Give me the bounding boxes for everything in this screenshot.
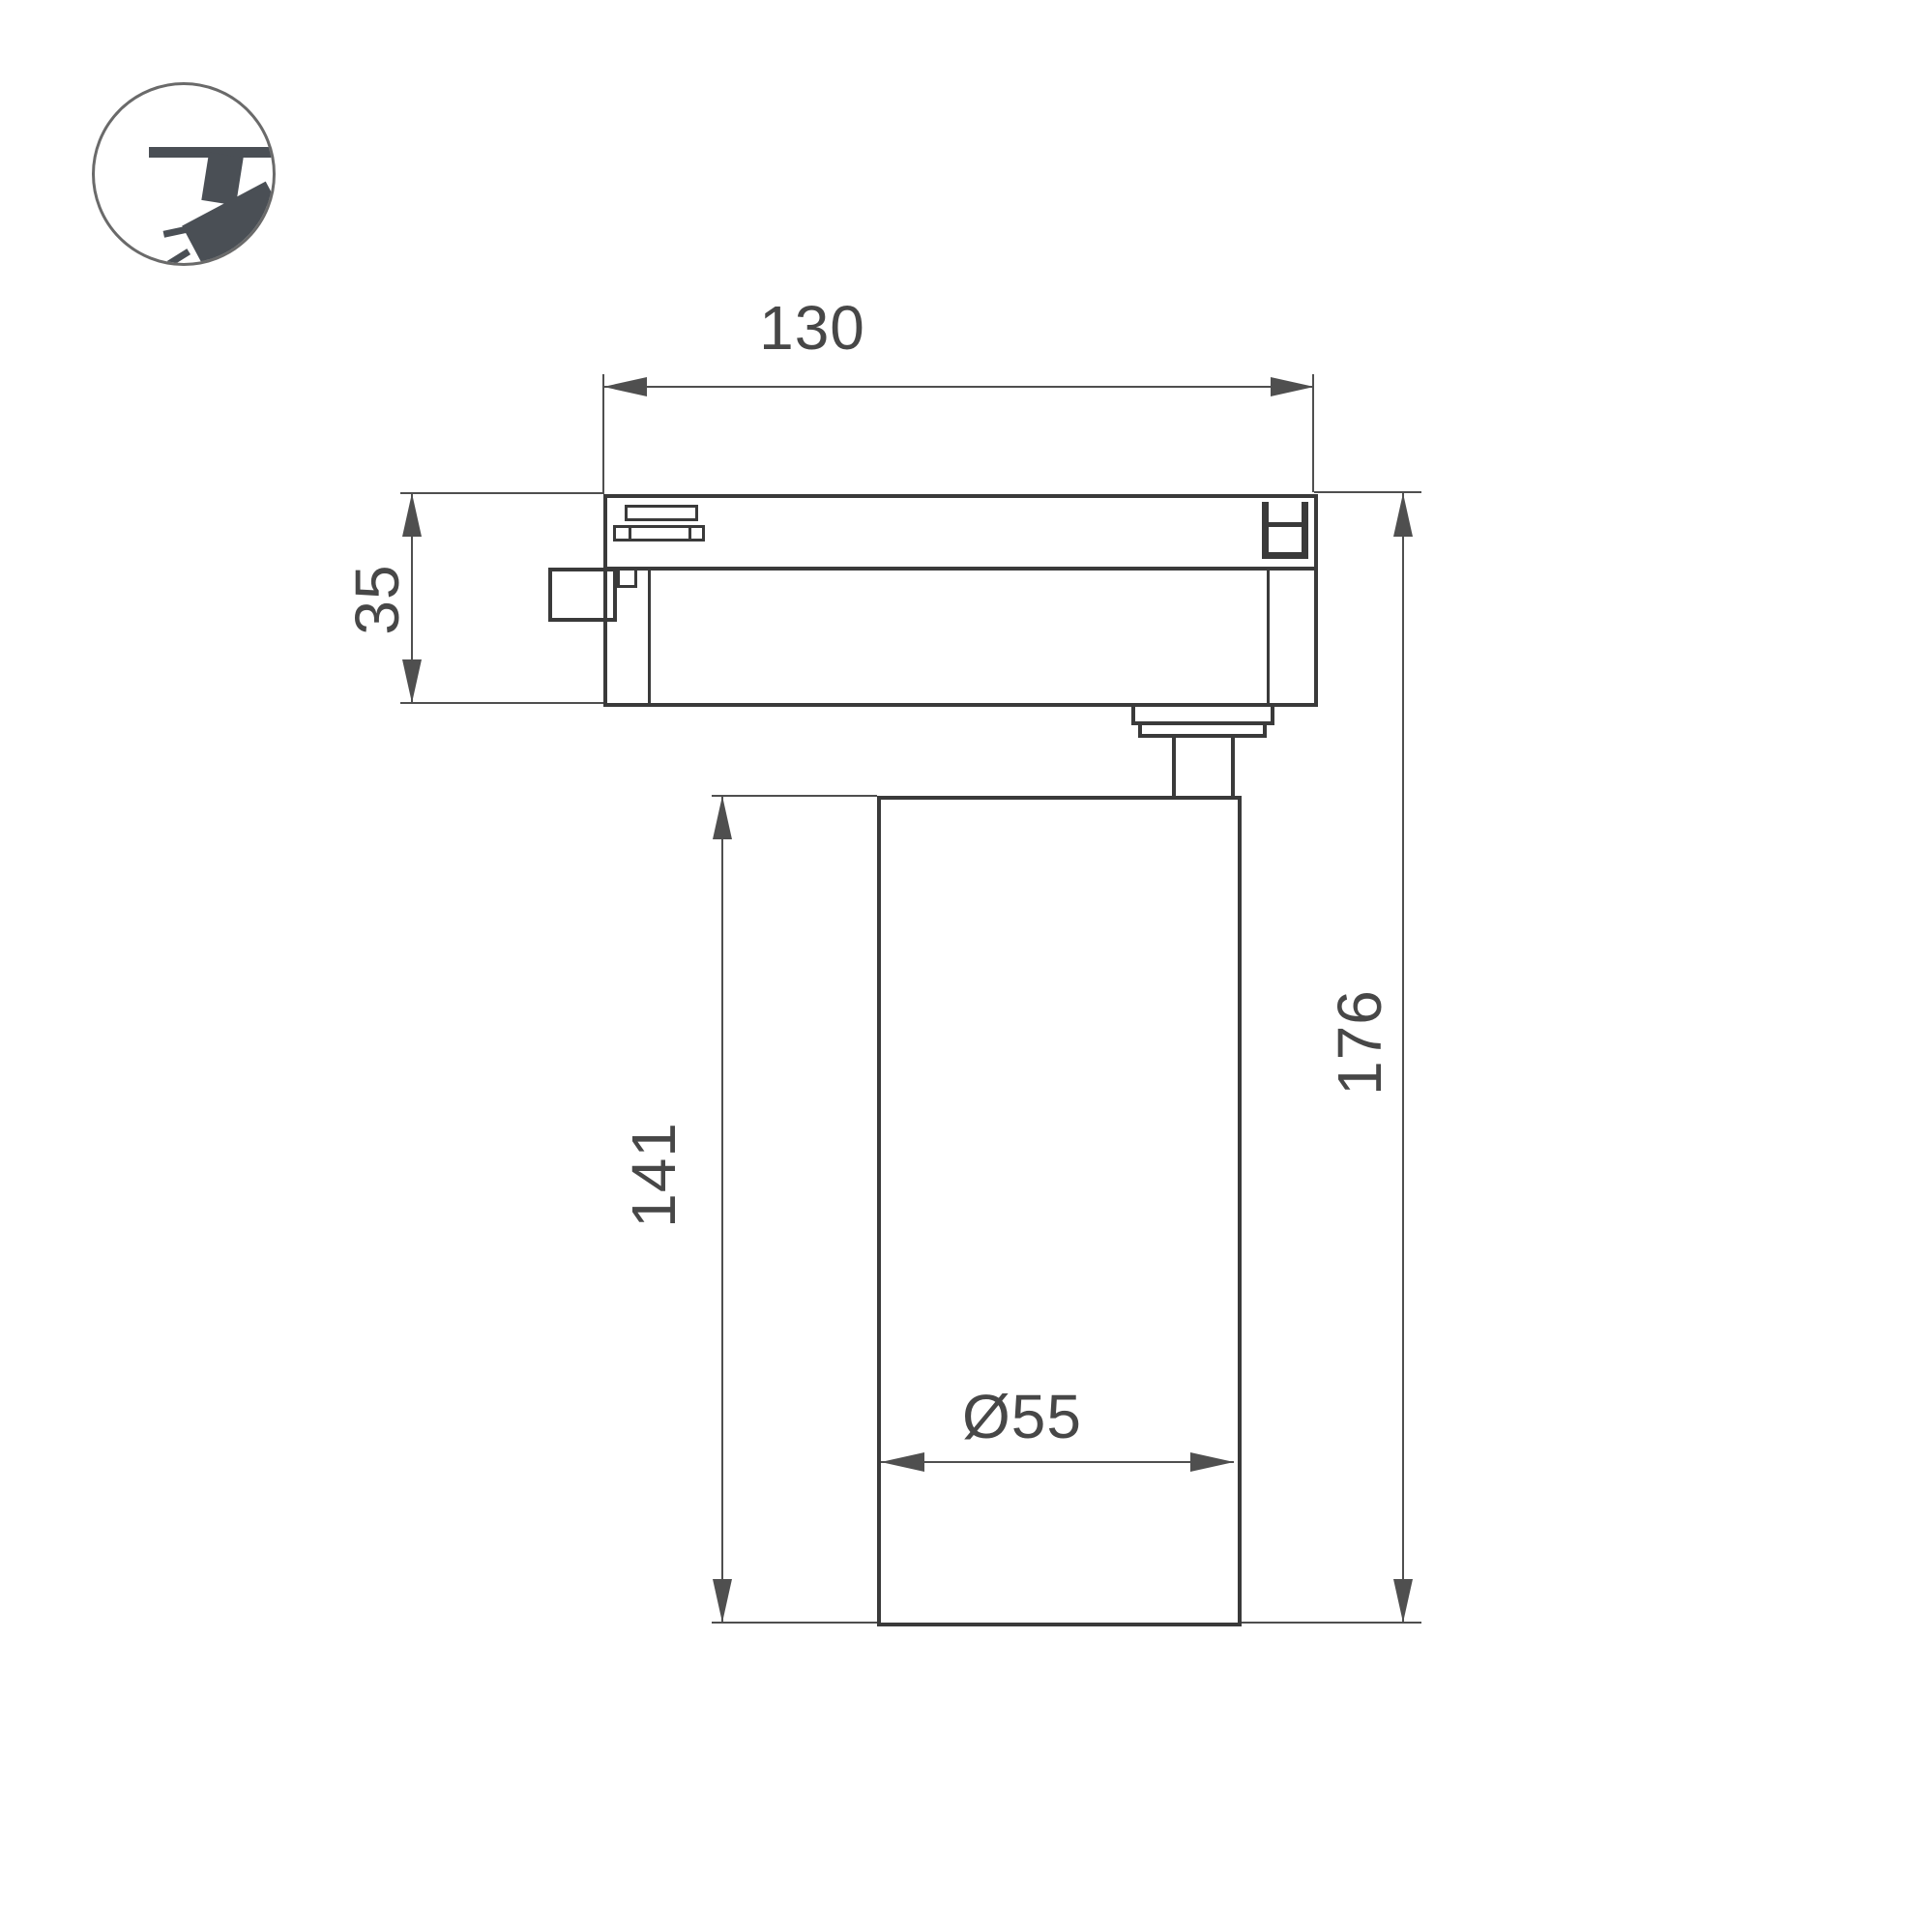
dim-176-arrow-bottom xyxy=(1393,1579,1413,1623)
dim-55-label: Ø55 xyxy=(925,1385,1119,1449)
dim-130-label: 130 xyxy=(735,296,890,360)
body-inner-divider xyxy=(1267,571,1270,703)
dim-176-label: 176 xyxy=(1329,955,1390,1129)
neck-stem xyxy=(1172,734,1235,800)
dim-141-arrow-top xyxy=(713,796,732,839)
dim-35-arrow-top xyxy=(402,493,422,537)
dim-130-arrow-left xyxy=(603,377,647,396)
technical-drawing-canvas: 130 35 141 176 Ø55 xyxy=(0,0,1932,1932)
contact-slot-divider xyxy=(629,528,631,539)
right-clip-outline xyxy=(1262,502,1308,559)
adapter-body-outline xyxy=(603,567,1318,707)
left-latch-outline xyxy=(548,568,617,622)
dim-130-line xyxy=(603,386,1314,388)
dim-141-extension-top xyxy=(712,795,877,797)
dim-35-label: 35 xyxy=(346,532,408,667)
body-inner-divider xyxy=(648,571,651,703)
lamp-body-outline xyxy=(877,796,1242,1626)
dim-176-line xyxy=(1402,493,1404,1623)
dim-176-arrow-top xyxy=(1393,493,1413,537)
dim-141-arrow-bottom xyxy=(713,1579,732,1623)
track-spotlight-icon xyxy=(92,82,276,266)
dim-35-extension-top xyxy=(400,492,603,494)
contact-slot-upper xyxy=(625,505,698,521)
dim-141-extension-bottom xyxy=(712,1622,877,1624)
dim-130-arrow-right xyxy=(1271,377,1314,396)
right-clip-rung xyxy=(1269,522,1302,527)
dim-55-line xyxy=(881,1461,1234,1463)
adapter-top-plate-outline xyxy=(603,494,1318,571)
light-ray-icon xyxy=(167,249,190,266)
dim-55-arrow-right xyxy=(1190,1452,1234,1472)
light-ray-icon xyxy=(163,225,190,237)
dim-141-line xyxy=(721,796,723,1623)
latch-notch xyxy=(617,567,637,588)
contact-slot-divider xyxy=(688,528,691,539)
dim-55-arrow-left xyxy=(881,1452,924,1472)
dim-141-label: 141 xyxy=(623,1088,685,1262)
dim-35-extension-bottom xyxy=(400,702,603,704)
